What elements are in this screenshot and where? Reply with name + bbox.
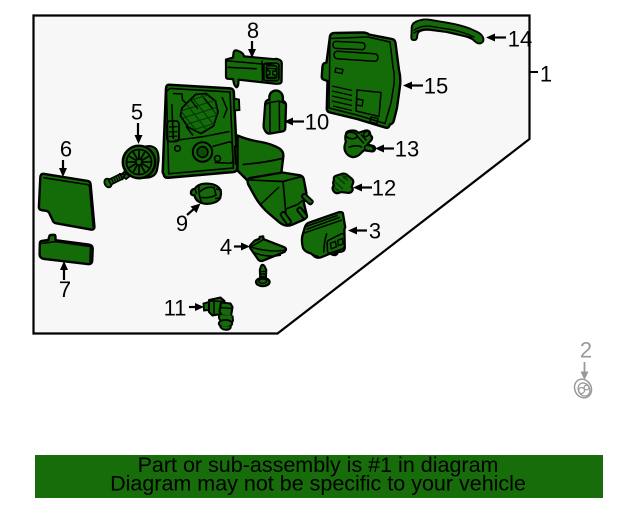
svg-text:3: 3 (369, 219, 381, 244)
svg-text:2: 2 (580, 338, 592, 363)
svg-text:8: 8 (247, 18, 259, 43)
svg-text:7: 7 (59, 277, 71, 302)
svg-text:1: 1 (540, 62, 552, 87)
svg-text:12: 12 (372, 176, 396, 201)
svg-text:11: 11 (164, 296, 187, 321)
svg-text:13: 13 (395, 137, 419, 162)
svg-text:10: 10 (305, 110, 329, 135)
svg-text:9: 9 (176, 211, 188, 236)
svg-text:5: 5 (131, 100, 143, 125)
svg-text:Diagram may not be specific to: Diagram may not be specific to your vehi… (110, 472, 526, 496)
svg-text:14: 14 (508, 27, 532, 52)
svg-text:4: 4 (220, 235, 232, 260)
svg-text:6: 6 (60, 137, 72, 162)
svg-text:15: 15 (424, 74, 448, 99)
